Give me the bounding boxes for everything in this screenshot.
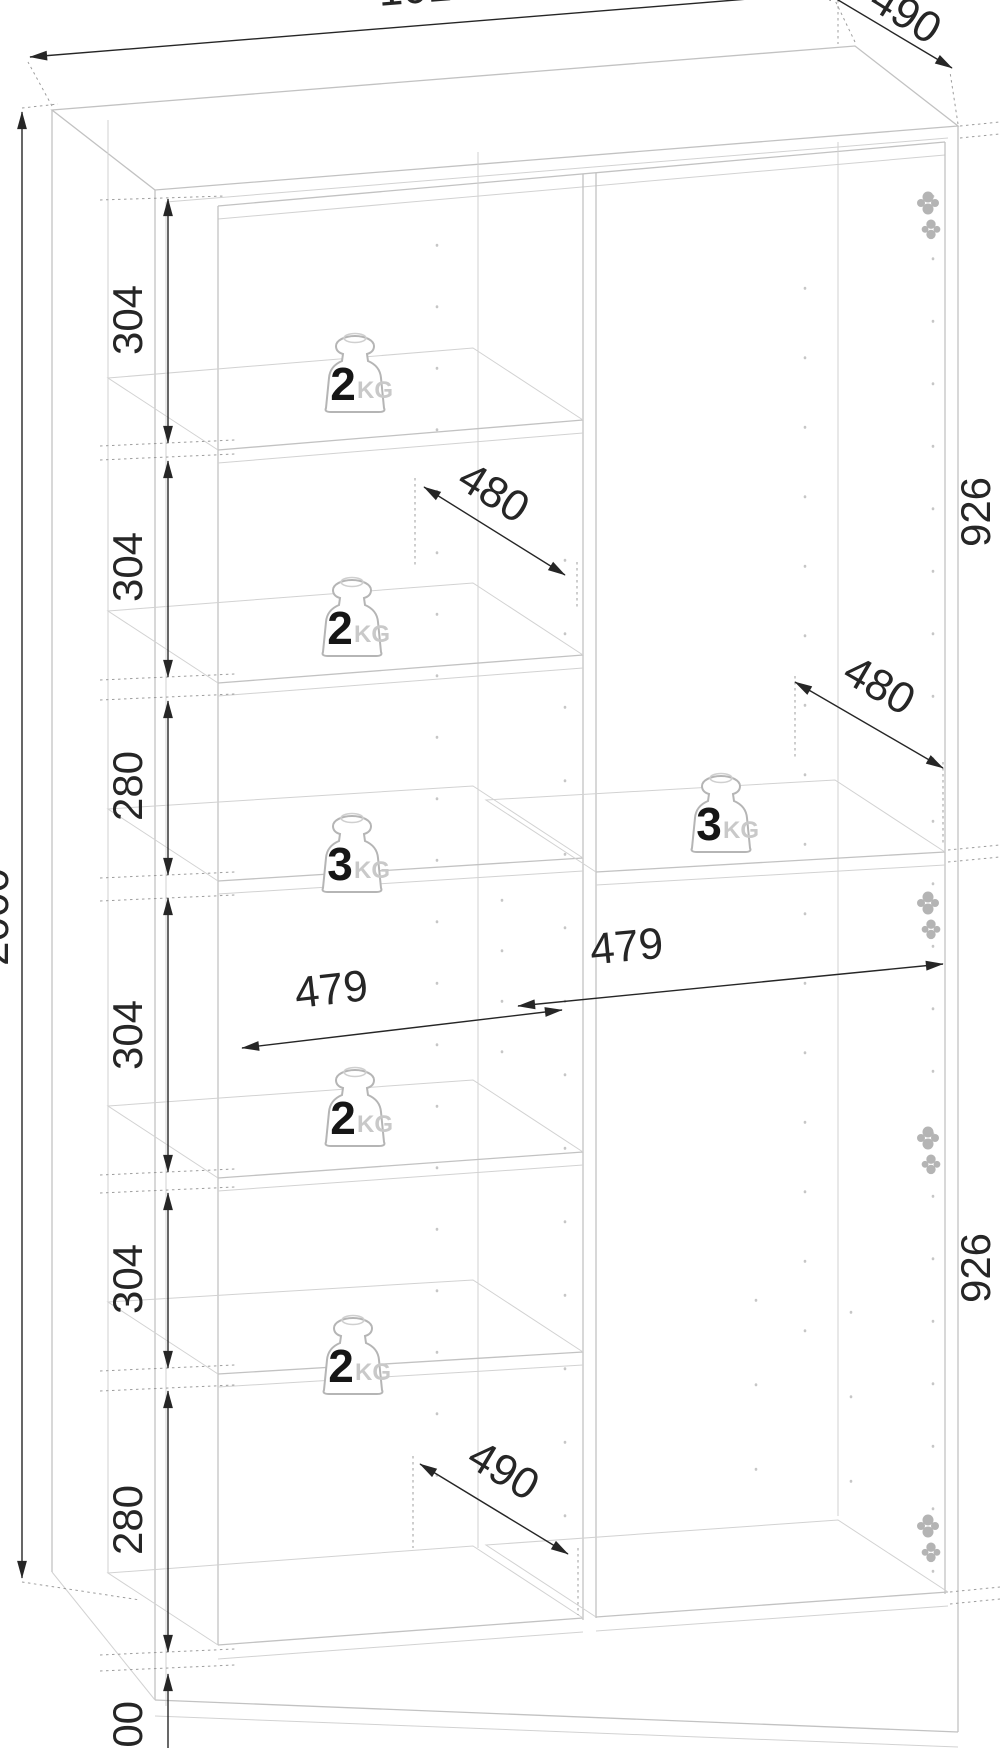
bottom-panel-left-front-edge2 [218,1632,583,1659]
hinge-icon [917,1515,940,1563]
bottom-panel-left-front-edge [218,1618,583,1645]
top-opening-edge-inner [218,155,945,219]
weight-unit: KG [723,817,759,844]
plinth-front-edge [155,1700,958,1732]
weight-icon-shelf5: 2 KG [324,1316,391,1395]
weight-value: 2 [330,1092,356,1144]
dim-label-seg3: 280 [104,751,151,821]
dim-label-height-total: 2000 [0,868,18,966]
dim-label-seg2: 304 [104,532,151,602]
dim-label-inner-width-left: 479 [292,961,370,1018]
hinge-icon [917,1127,940,1175]
weight-icon-shelf1: 2 KG [326,334,393,413]
weight-value: 3 [327,838,353,890]
dim-label-seg6: 280 [104,1485,151,1555]
hinge-icon [917,192,940,240]
weight-icon-shelf4: 2 KG [326,1068,393,1147]
plinth-front-edge2 [155,1716,958,1747]
bottom-panel-right-surface [486,1520,948,1617]
weight-unit: KG [354,621,390,648]
dim-label-seg7: 100 [104,1701,151,1748]
weight-unit: KG [355,1359,391,1386]
dim-label-seg4: 304 [104,1000,151,1070]
dim-label-side-height-lower: 926 [952,1233,999,1303]
load-weight-icons: 2 KG 2 KG 3 KG 2 KG 2 KG [323,334,759,1395]
top-panel-outline [52,46,958,190]
weight-icon-shelf2: 2 KG [323,578,390,657]
hinge-icon [917,892,940,940]
top-panel-front-inner-line [166,138,948,202]
shelf-pin-holes [437,196,933,1590]
dim-label-seg5: 304 [104,1244,151,1314]
weight-value: 2 [328,1340,354,1392]
dim-label-depth-top: 490 [862,0,950,54]
weight-value: 3 [696,798,722,850]
weight-unit: KG [354,857,390,884]
weight-value: 2 [327,602,353,654]
bottom-panel-right-front-edge2 [596,1606,948,1631]
bottom-panel-right-front-edge [596,1592,948,1617]
dim-label-seg1: 304 [104,285,151,355]
dim-label-shelf-depth-upper: 480 [450,452,538,532]
dimension-labels: 1010 490 2000 304 304 280 304 304 280 10… [0,0,999,1748]
weight-unit: KG [357,377,393,404]
dim-line-inner-width-right [518,964,943,1006]
bottom-panel-left-surface [108,1546,583,1645]
weight-value: 2 [330,358,356,410]
left-plinth-diagonal [52,1572,155,1700]
drawing-canvas: 2 KG 2 KG 3 KG 2 KG 2 KG [0,0,1000,1748]
top-opening-edge [218,142,945,206]
dim-label-inner-width-right: 479 [588,919,666,975]
weight-icon-shelf3: 3 KG [323,814,390,893]
furniture-dimension-drawing: 2 KG 2 KG 3 KG 2 KG 2 KG [0,0,1000,1748]
dim-label-shelf-depth-bottom: 490 [459,1431,547,1511]
dim-label-side-height-upper: 926 [952,477,999,547]
weight-unit: KG [357,1111,393,1138]
dim-line-inner-width-left [242,1010,562,1048]
hinge-icons [917,192,940,1563]
dim-label-width-top: 1010 [376,0,478,16]
